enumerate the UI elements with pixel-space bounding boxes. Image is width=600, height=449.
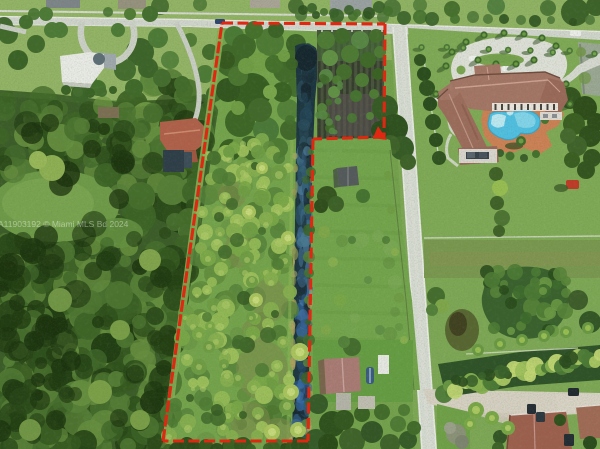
svg-text:A11903192 © Miami MLS Bd 2024: A11903192 © Miami MLS Bd 2024 xyxy=(0,219,129,229)
